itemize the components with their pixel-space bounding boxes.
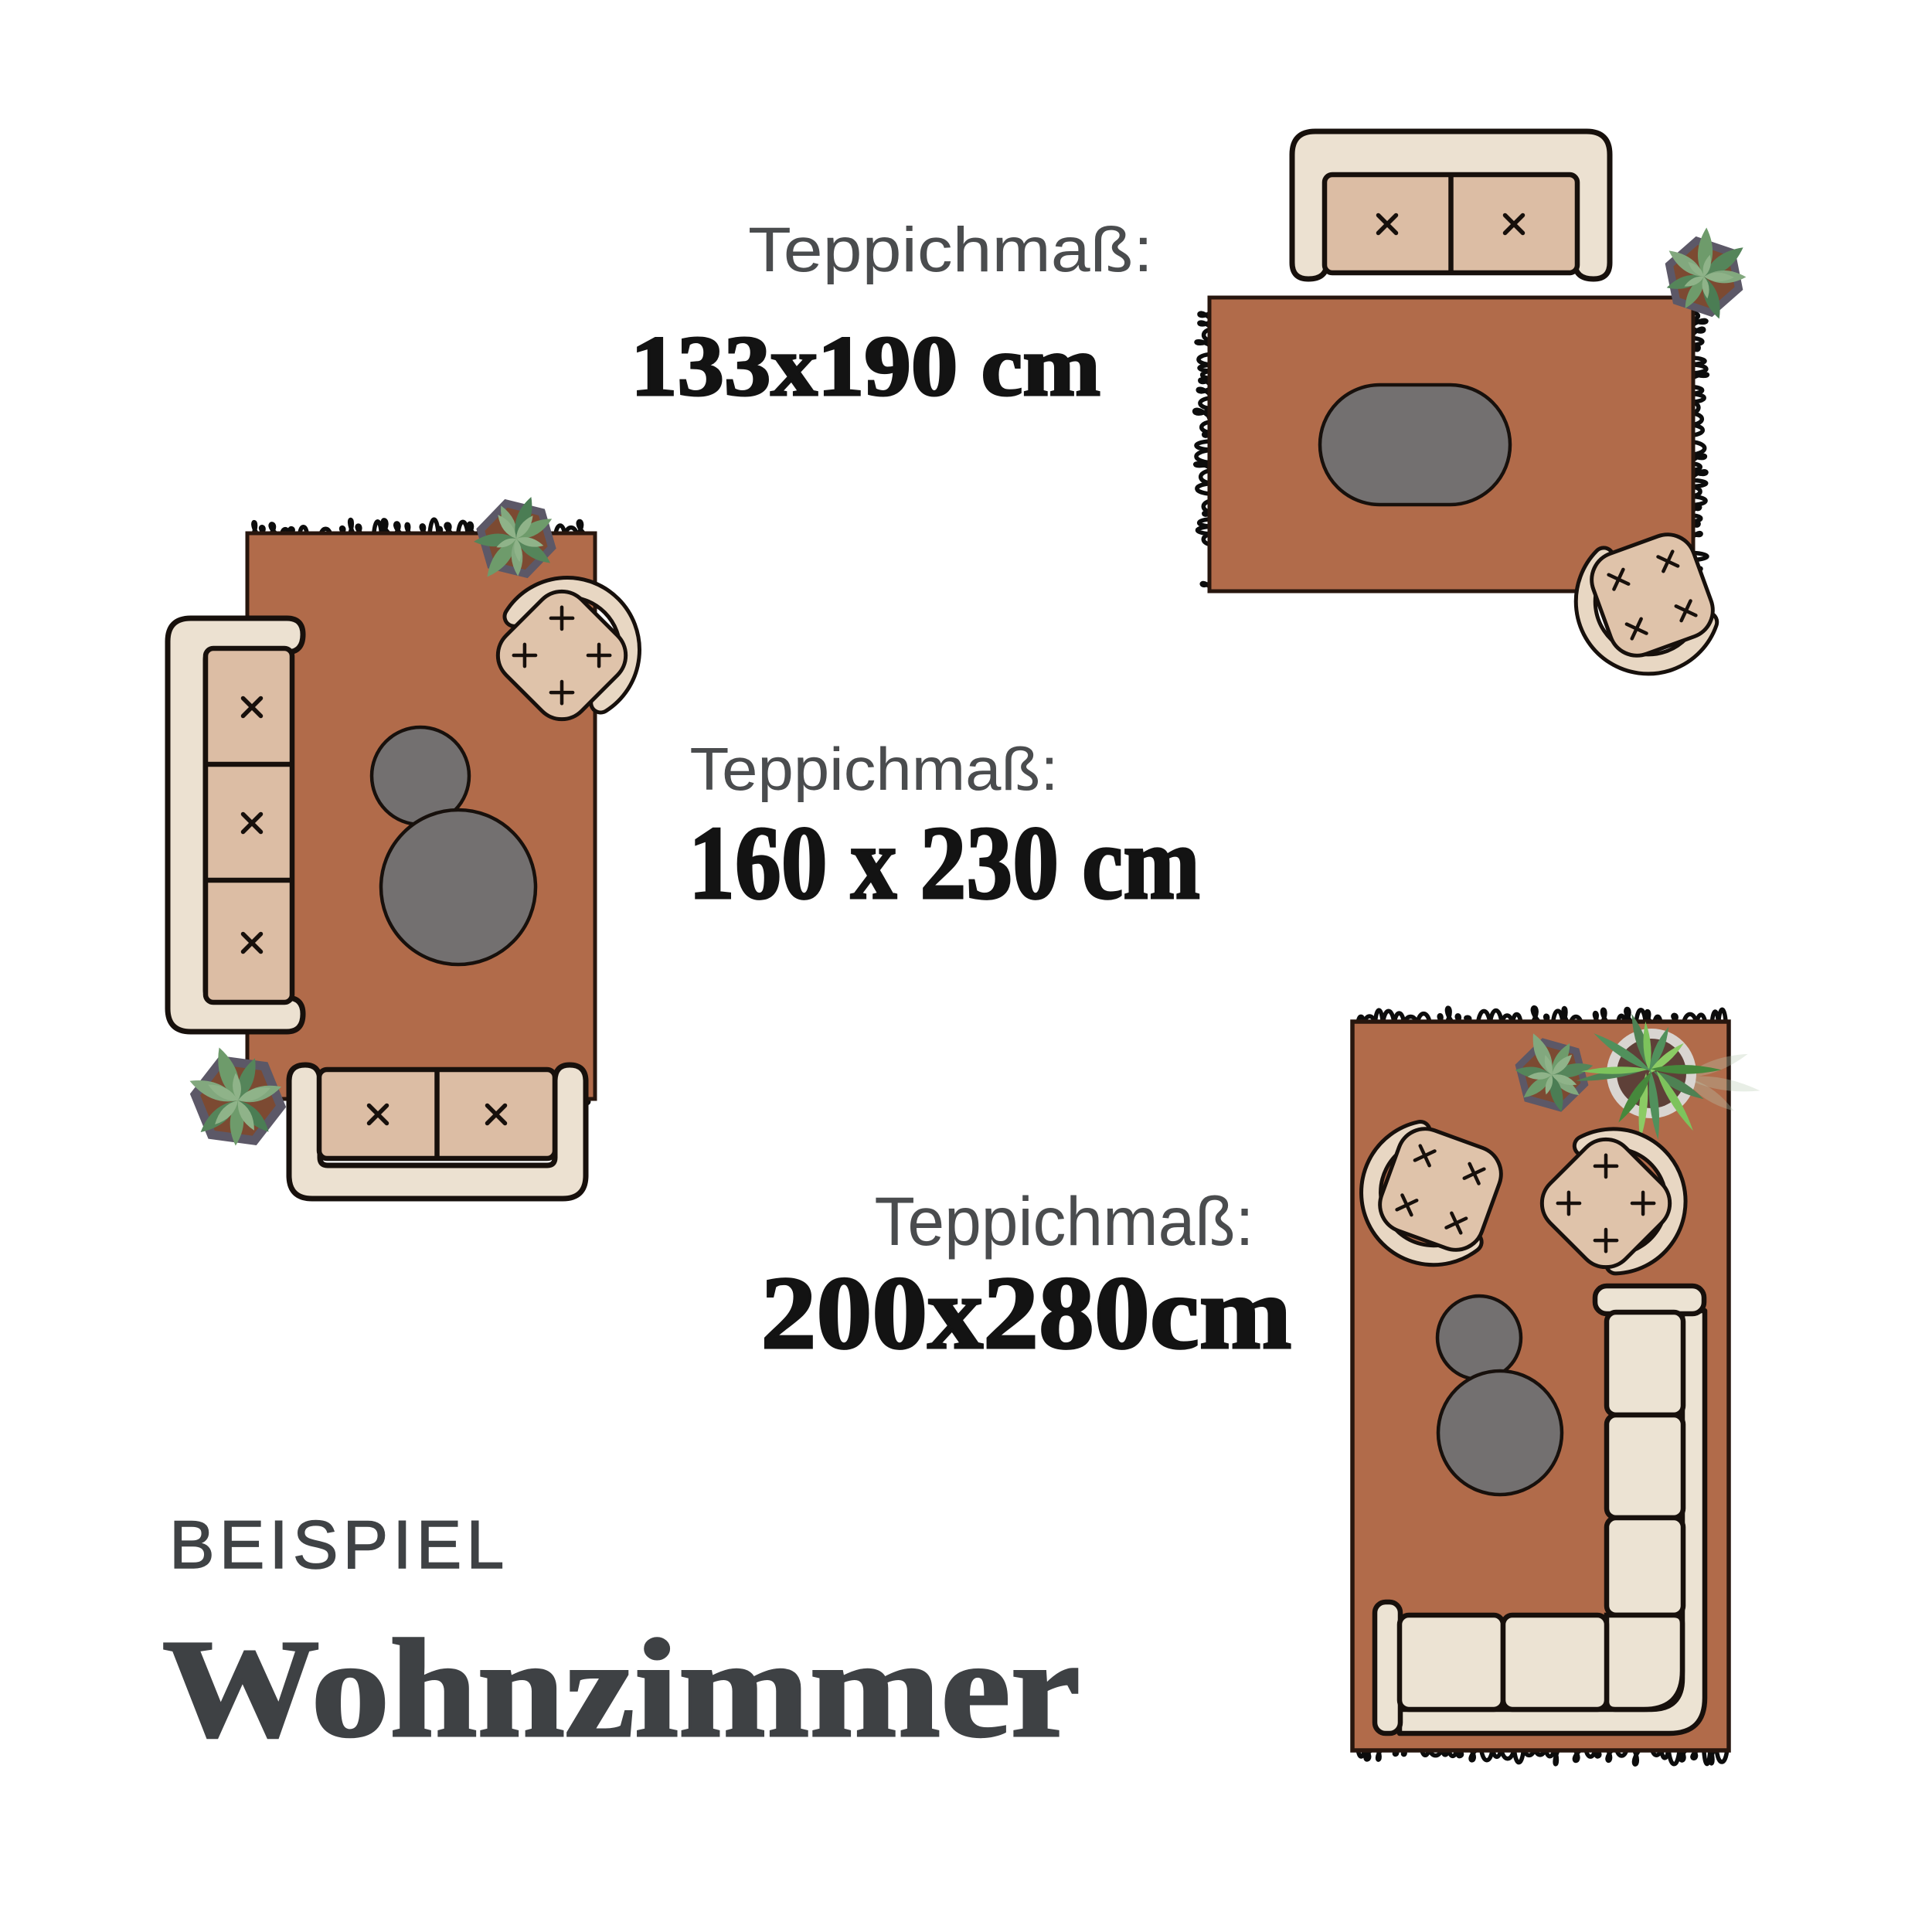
svg-text:Teppichmaß:: Teppichmaß: [748,215,1153,285]
svg-text:BEISPIEL: BEISPIEL [169,1506,509,1583]
svg-text:133x190 cm: 133x190 cm [631,319,1100,414]
svg-text:Wohnzimmer: Wohnzimmer [162,1611,1080,1767]
svg-text:Teppichmaß:: Teppichmaß: [875,1182,1254,1260]
svg-text:160 x 230 cm: 160 x 230 cm [689,805,1200,921]
svg-text:200x280cm: 200x280cm [761,1256,1292,1371]
svg-text:Teppichmaß:: Teppichmaß: [690,735,1059,803]
